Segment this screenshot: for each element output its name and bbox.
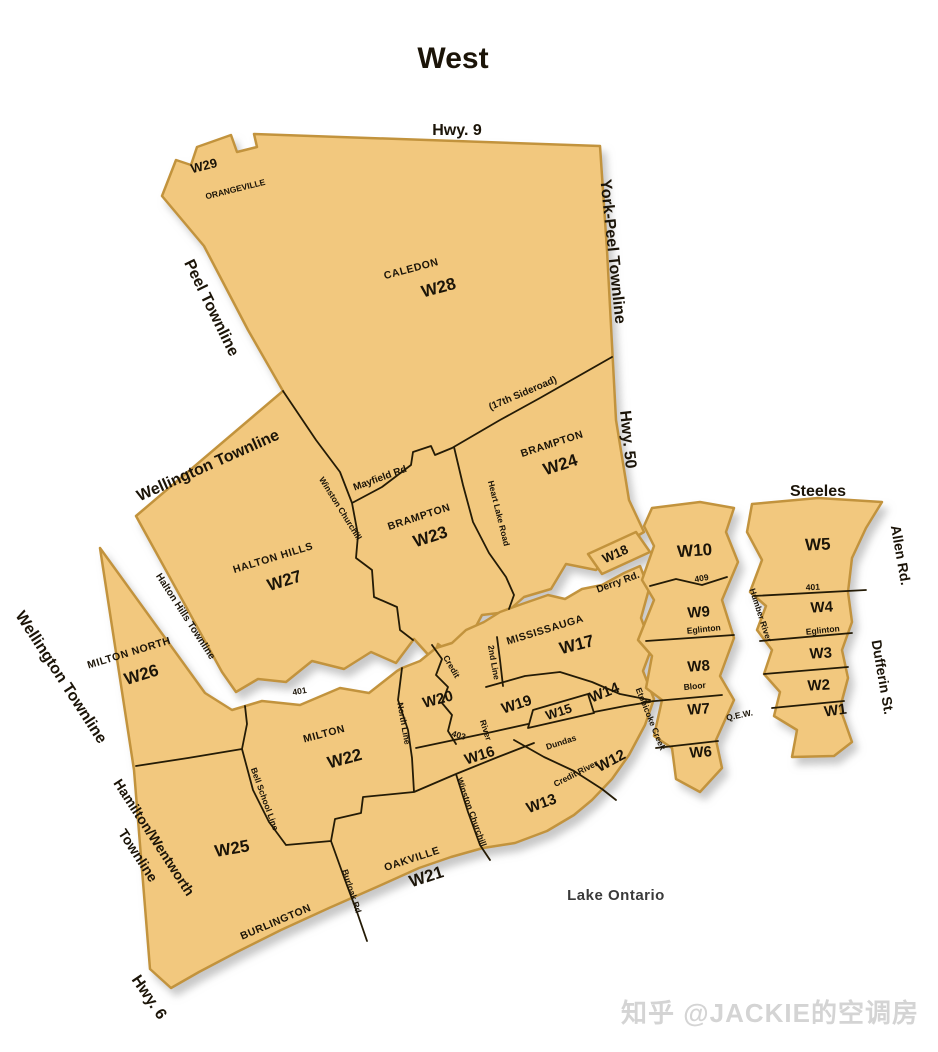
- road-label-401-west: 401: [292, 685, 308, 697]
- district-label-w9: W9: [687, 603, 711, 622]
- district-label-w6: W6: [689, 743, 713, 762]
- page-title: West: [417, 42, 488, 75]
- district-label-w3: W3: [809, 644, 832, 662]
- district-label-w5: W5: [805, 535, 831, 555]
- road-label-wellington-townline-sw: Wellington Townline: [12, 608, 110, 747]
- watermark: 知乎 @JACKIE的空调房: [621, 998, 919, 1028]
- west-district-map: West Hwy. 9 York-Peel Townline Hwy. 50 P…: [0, 0, 938, 1052]
- district-label-w4: W4: [810, 598, 834, 616]
- road-label-401-east: 401: [805, 582, 820, 593]
- road-label-hwy9: Hwy. 9: [432, 122, 482, 139]
- district-label-w7: W7: [687, 700, 711, 719]
- water-label-lake-ontario: Lake Ontario: [567, 887, 665, 904]
- road-label-dufferin-st: Dufferin St.: [868, 639, 897, 716]
- road-label-steeles: Steeles: [790, 483, 846, 500]
- district-label-w8: W8: [687, 657, 711, 676]
- map-canvas: West Hwy. 9 York-Peel Townline Hwy. 50 P…: [0, 0, 938, 1052]
- district-label-w2: W2: [807, 676, 830, 694]
- district-label-w1: W1: [823, 701, 848, 721]
- road-label-allen-rd: Allen Rd.: [888, 524, 914, 587]
- district-label-w10: W10: [677, 540, 713, 561]
